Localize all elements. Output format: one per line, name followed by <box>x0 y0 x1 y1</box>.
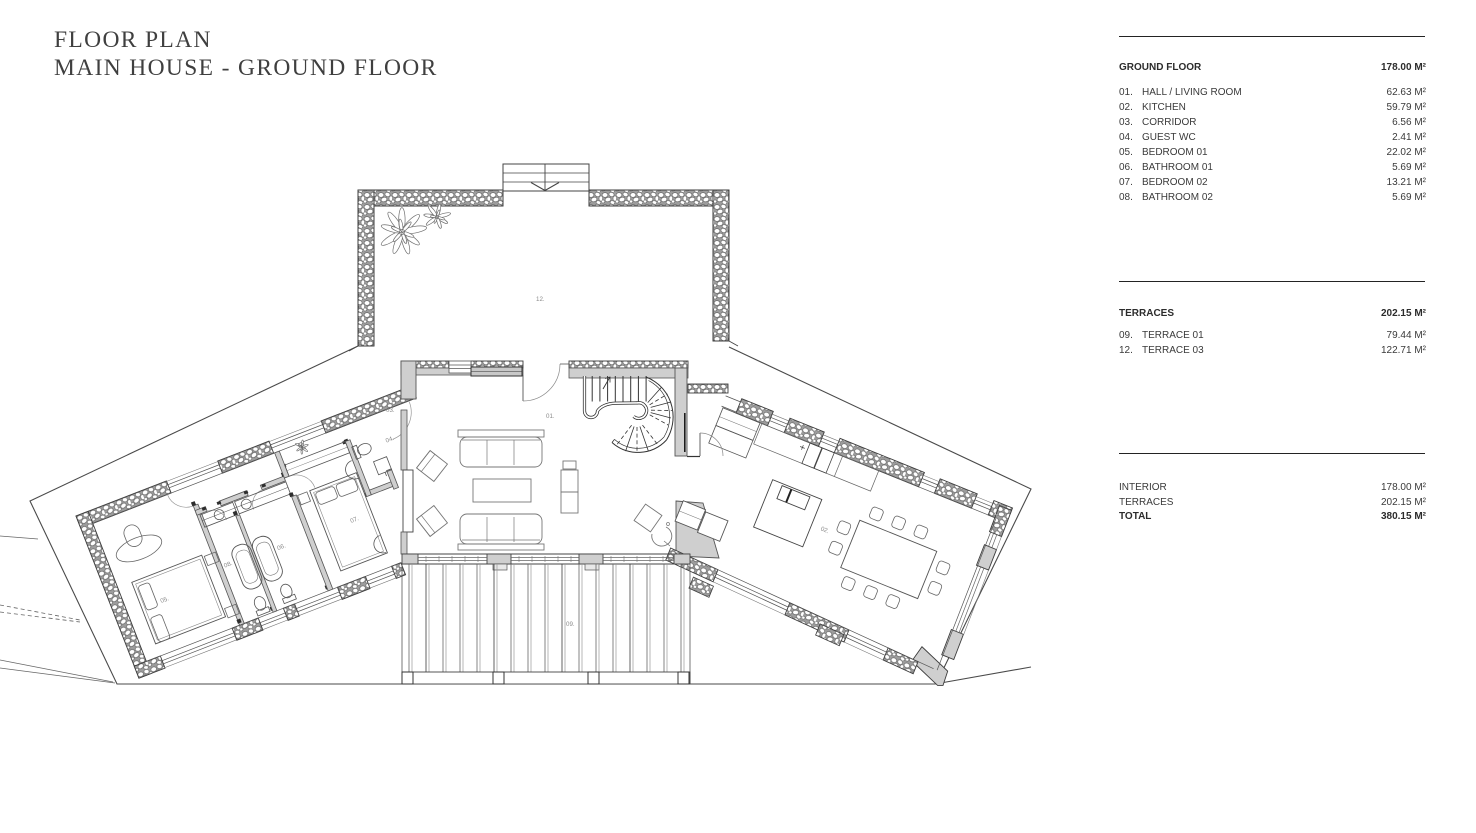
svg-text:12.: 12. <box>536 296 545 303</box>
svg-text:07.: 07. <box>349 515 360 525</box>
svg-text:09.: 09. <box>566 621 575 628</box>
svg-text:04.: 04. <box>385 435 396 445</box>
svg-text:05.: 05. <box>159 595 170 605</box>
svg-text:08.: 08. <box>223 560 234 570</box>
svg-text:01.: 01. <box>546 413 555 420</box>
svg-text:03.: 03. <box>386 407 395 414</box>
svg-text:06.: 06. <box>276 542 287 552</box>
svg-text:02.: 02. <box>819 526 830 536</box>
